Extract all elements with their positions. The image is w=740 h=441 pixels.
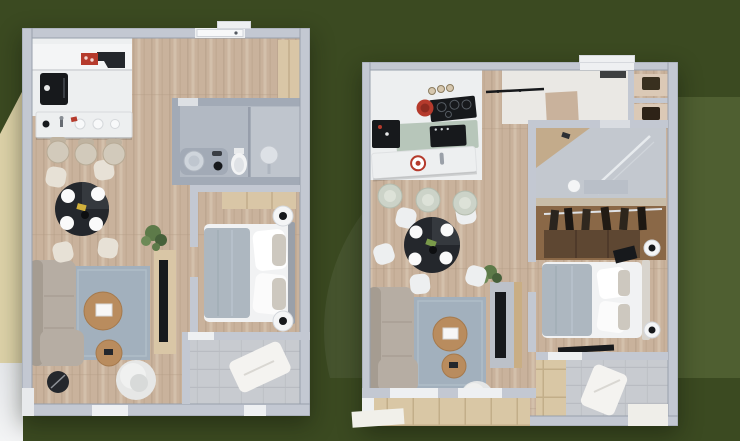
- pot-detail: [84, 56, 87, 59]
- plate: [60, 216, 74, 230]
- door-handle: [234, 31, 237, 34]
- balcony-wall-left: [182, 340, 190, 404]
- wash-basin-bowl: [189, 156, 200, 167]
- lamp-shade: [649, 327, 656, 334]
- floor-plan-right-svg: [362, 62, 678, 426]
- floor-plan-right: [362, 62, 678, 426]
- plate: [440, 252, 453, 265]
- fridge-item: [385, 132, 389, 136]
- bedroom-wall-left-upper: [190, 185, 198, 247]
- bedroom-wall-top: [190, 185, 300, 192]
- tv: [159, 260, 168, 342]
- bathroom: [172, 98, 300, 185]
- bowl: [429, 246, 437, 254]
- vase: [439, 152, 444, 164]
- bathroom-wall-bottom: [172, 177, 300, 185]
- wall-bottom: [22, 404, 310, 416]
- plate: [61, 189, 75, 203]
- entry-closets: [628, 70, 668, 128]
- book-on-table: [96, 304, 112, 316]
- vanity-accessory: [212, 151, 222, 156]
- closet-storage: [642, 77, 660, 90]
- nightstand-lamp: [279, 317, 287, 325]
- bed-duvet: [542, 264, 592, 336]
- glass-door: [92, 405, 128, 416]
- bowl: [81, 211, 89, 219]
- round-mirror: [260, 146, 278, 164]
- bathroom-wall-top: [528, 120, 668, 128]
- entry-opening: [580, 62, 634, 70]
- doormat: [600, 71, 626, 78]
- balcony-door: [188, 332, 214, 340]
- entry-door-threshold-left: [217, 21, 251, 29]
- balcony-glass-door: [548, 352, 582, 360]
- spice-jar: [429, 88, 436, 95]
- faucet-head: [60, 116, 64, 120]
- tv-panel-wood-edge: [514, 282, 522, 368]
- bathroom-door: [178, 98, 198, 106]
- bar-stool: [75, 143, 97, 165]
- fridge-detail: [44, 85, 50, 91]
- sink: [568, 180, 581, 193]
- plate: [89, 217, 103, 231]
- stove-red-pot: [81, 53, 98, 65]
- corner-trim: [22, 388, 34, 416]
- hall-wall-lower: [528, 292, 536, 352]
- plate: [441, 224, 454, 237]
- dining-chair: [409, 273, 431, 295]
- closet-wall-top: [536, 198, 666, 206]
- item-on-table: [104, 349, 113, 355]
- glass-door: [244, 405, 266, 416]
- wall-right: [300, 28, 310, 416]
- balcony-white-wall: [628, 404, 668, 426]
- wall-left: [22, 28, 32, 416]
- headboard: [288, 222, 295, 324]
- fridge-item: [378, 125, 382, 129]
- wall-right: [668, 62, 678, 426]
- island-burner: [43, 121, 50, 128]
- tv: [495, 292, 506, 358]
- accent-pillow: [272, 278, 286, 310]
- entry-door-threshold-right: [579, 55, 635, 63]
- coat-hook: [497, 90, 500, 93]
- bar-stools: [47, 137, 125, 165]
- shower-divider: [248, 107, 251, 177]
- hall-wall-upper: [528, 120, 536, 262]
- balcony-deck: [536, 360, 566, 416]
- balcony: [190, 340, 300, 404]
- bedroom-wall-left-lower: [190, 277, 198, 334]
- counter-shadow: [32, 69, 132, 71]
- spice-jar: [438, 86, 445, 93]
- bed-duvet: [204, 228, 250, 318]
- nightstand-lamp: [279, 212, 287, 220]
- bathroom-wall-left: [172, 98, 180, 185]
- left-beige-stripe: [0, 90, 23, 363]
- book-on-table: [443, 328, 458, 339]
- spice-jar: [447, 85, 454, 92]
- stool-seat: [422, 194, 434, 206]
- plate: [111, 120, 120, 129]
- plate: [410, 226, 423, 239]
- shower-curb: [584, 180, 628, 194]
- left-white-stripe: [0, 363, 23, 441]
- stool-seat: [459, 197, 471, 209]
- wall-top: [22, 28, 310, 38]
- armchair-seat: [130, 374, 148, 392]
- lamp-shade: [649, 245, 656, 252]
- scene-two-floor-plans: [0, 0, 740, 441]
- glass-door: [458, 388, 502, 398]
- stool-seat: [384, 190, 396, 202]
- shower-floor: [251, 107, 300, 177]
- sofa-chaise: [40, 330, 84, 366]
- hairdryer: [214, 162, 223, 171]
- floor-plan-left: [22, 28, 310, 416]
- fridge-handle: [63, 78, 65, 98]
- closet-shelf-wall: [628, 98, 668, 103]
- living-wall-bottom: [362, 388, 536, 398]
- toilet-seat: [234, 158, 244, 173]
- red-pot-inner: [421, 104, 430, 113]
- wall-left: [362, 62, 370, 398]
- plate: [91, 187, 105, 201]
- closet-storage: [642, 107, 660, 120]
- pot-detail: [90, 58, 93, 61]
- mirror-stand: [268, 164, 271, 174]
- faucet: [60, 119, 63, 127]
- bar-stool: [47, 141, 69, 163]
- accent-pillow: [272, 234, 286, 266]
- plate: [409, 253, 422, 266]
- bathroom-door: [600, 120, 630, 128]
- bar-stool: [103, 143, 125, 165]
- entry-mat: [545, 91, 579, 123]
- sofa-chaise: [378, 358, 418, 392]
- glass-door: [390, 388, 438, 398]
- accent-pillow: [618, 270, 630, 296]
- coat-hook: [519, 89, 522, 92]
- accent-pillow: [618, 304, 630, 330]
- sink: [93, 119, 103, 129]
- floor-plan-left-svg: [22, 28, 310, 416]
- bathroom: [536, 128, 666, 198]
- item-on-table: [449, 362, 458, 368]
